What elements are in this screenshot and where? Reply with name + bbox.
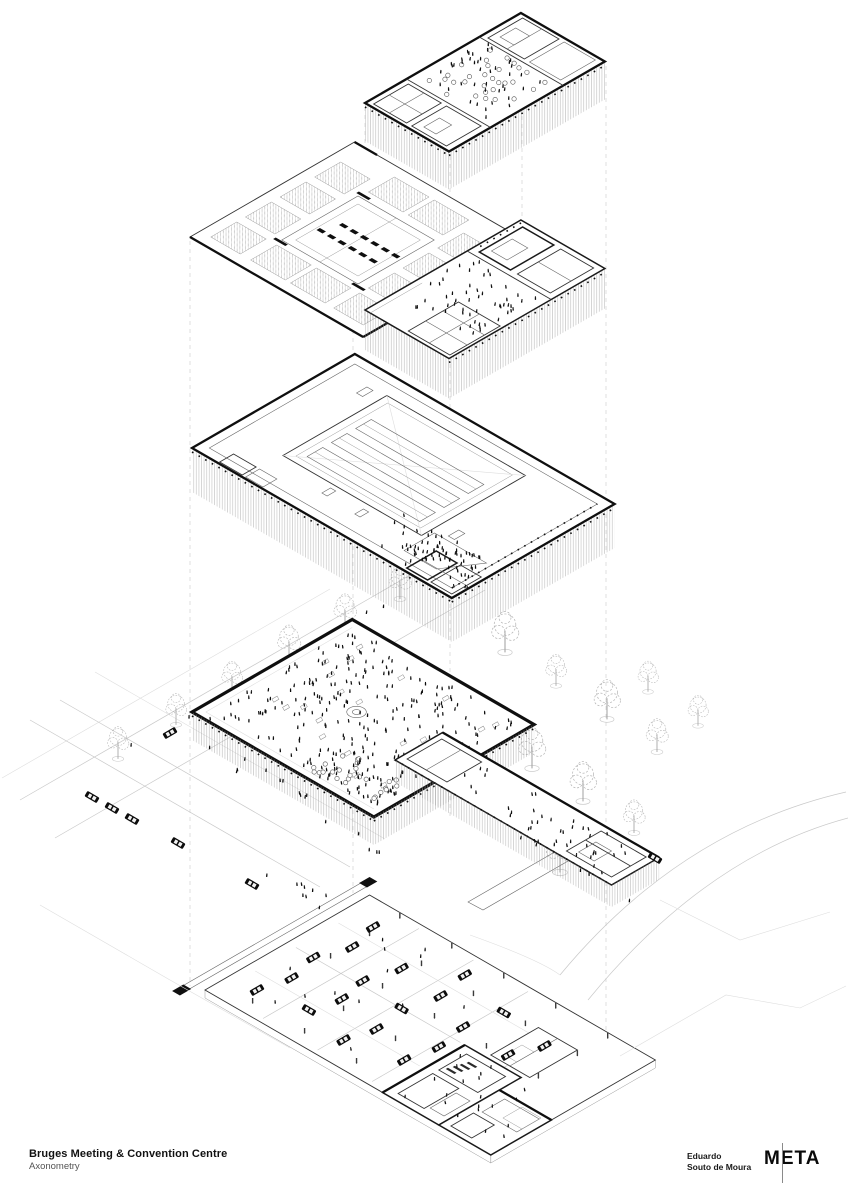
level-exhibition (192, 354, 615, 642)
level-parking (172, 877, 671, 1165)
drawing-title: Axonometry (29, 1161, 227, 1172)
level-banquet (365, 13, 605, 190)
axonometric-drawing (0, 0, 848, 1200)
architect-name-line2: Souto de Moura (687, 1162, 751, 1173)
title-block: Bruges Meeting & Convention Centre Axono… (29, 1148, 227, 1172)
architect-name-line1: Eduardo (687, 1151, 751, 1162)
meta-logo: META (764, 1148, 820, 1170)
project-title: Bruges Meeting & Convention Centre (29, 1148, 227, 1160)
architect-credit: Eduardo Souto de Moura (687, 1151, 751, 1172)
drawing-sheet: Bruges Meeting & Convention Centre Axono… (0, 0, 848, 1200)
level-roof-mezzanine (190, 142, 605, 399)
meta-logo-bar-icon (782, 1143, 783, 1183)
